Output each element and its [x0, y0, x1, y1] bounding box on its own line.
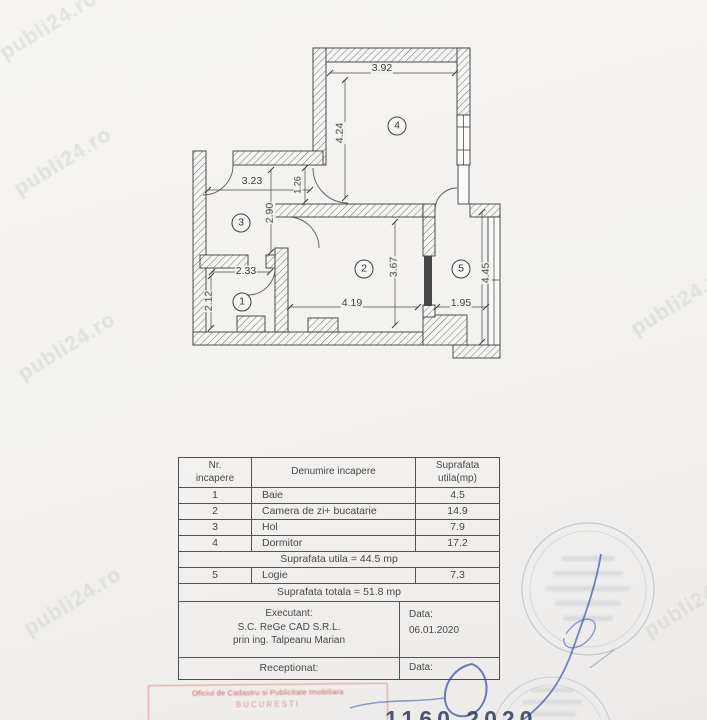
room-number-1: 1	[233, 293, 252, 312]
cell-area: 14.9	[416, 504, 499, 519]
date-label: Data:	[409, 607, 499, 623]
cell-area: 7.9	[416, 520, 499, 535]
receptionat-label: Receptionat:	[179, 658, 400, 679]
red-stamp-line1: Oficiul de Cadastru si Publicitate Imobi…	[149, 687, 387, 698]
balcony-door-leaf	[424, 256, 432, 306]
registration-number: 1160 2020	[385, 706, 537, 720]
table-row: 3 Hol 7.9	[179, 520, 499, 536]
executant-row: Executant: S.C. ReGe CAD S.R.L. prin ing…	[179, 602, 499, 658]
red-cadastre-stamp: Oficiul de Cadastru si Publicitate Imobi…	[148, 683, 388, 720]
dim-label-323: 3.23	[241, 176, 263, 187]
dim-label-424: 4.24	[335, 122, 346, 144]
cell-area: 4.5	[416, 488, 499, 503]
dim-label-212: 2.12	[204, 290, 215, 312]
room-number-4: 4	[388, 117, 407, 136]
receptionat-date-label: Data:	[400, 658, 499, 679]
red-stamp-line2: BUCURESTI	[149, 699, 387, 710]
cell-name: Baie	[252, 488, 416, 503]
dim-label-419: 4.19	[341, 298, 363, 309]
executant-label: Executant:	[179, 607, 399, 621]
cell-nr: 1	[179, 488, 252, 503]
table-row: 1 Baie 4.5	[179, 488, 499, 504]
dim-label-392: 3.92	[371, 63, 393, 74]
cell-name: Camera de zi+ bucatarie	[252, 504, 416, 519]
scanned-floor-plan-document: publi24.ro publi24.ro publi24.ro publi24…	[0, 0, 707, 720]
dim-label-290: 2.90	[265, 202, 276, 224]
window-room4	[457, 115, 470, 204]
room-number-2: 2	[355, 260, 374, 279]
cell-nr: 2	[179, 504, 252, 519]
cell-area: 7.3	[416, 568, 499, 583]
dim-label-195: 1.95	[450, 298, 472, 309]
executant-company: S.C. ReGe CAD S.R.L.	[179, 621, 399, 635]
dim-label-445: 4.45	[481, 262, 492, 284]
table-row: 4 Dormitor 17.2	[179, 536, 499, 552]
table-header-row: Nr. incapere Denumire incapere Suprafata…	[179, 458, 499, 488]
executant-date-cell: Data: 06.01.2020	[400, 602, 499, 657]
table-row: 2 Camera de zi+ bucatarie 14.9	[179, 504, 499, 520]
cell-area: 17.2	[416, 536, 499, 551]
header-suprafata: Suprafata utila(mp)	[416, 458, 499, 487]
round-stamp-certificat	[522, 523, 654, 655]
cell-nr: 5	[179, 568, 252, 583]
executant-engineer: prin ing. Talpeanu Marian	[179, 634, 399, 648]
header-denumire: Denumire incapere	[252, 458, 416, 487]
total-row: Suprafata totala = 51.8 mp	[179, 584, 499, 602]
table-row-logie: 5 Logie 7.3	[179, 568, 499, 584]
receptionat-row: Receptionat: Data:	[179, 658, 499, 679]
subtotal-row: Suprafata utila = 44.5 mp	[179, 552, 499, 568]
room-number-3: 3	[232, 214, 251, 233]
room-areas-table: Nr. incapere Denumire incapere Suprafata…	[178, 457, 500, 680]
executant-cell: Executant: S.C. ReGe CAD S.R.L. prin ing…	[179, 602, 400, 657]
date-value: 06.01.2020	[409, 623, 499, 639]
cell-nr: 4	[179, 536, 252, 551]
dim-label-367: 3.67	[389, 256, 400, 278]
header-nr-incapere: Nr. incapere	[179, 458, 252, 487]
cell-name: Hol	[252, 520, 416, 535]
dim-label-126: 1.26	[294, 175, 303, 195]
room-number-5: 5	[452, 260, 471, 279]
cell-name: Logie	[252, 568, 416, 583]
cell-nr: 3	[179, 520, 252, 535]
cell-name: Dormitor	[252, 536, 416, 551]
dim-label-233: 2.33	[235, 266, 257, 277]
